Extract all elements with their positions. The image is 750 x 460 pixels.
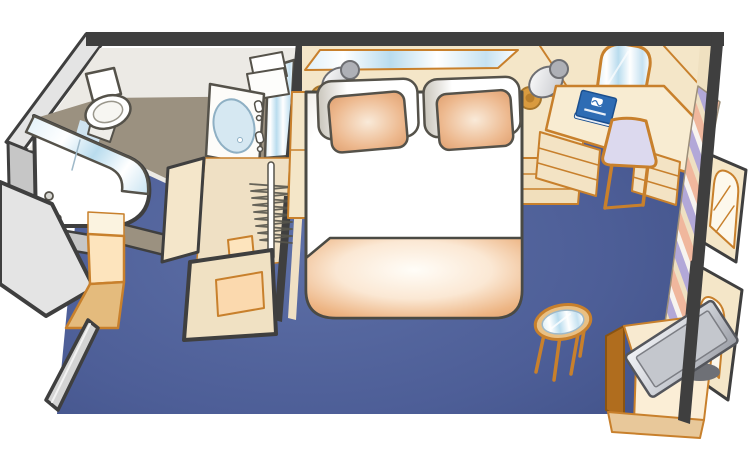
floorplan-canvas (0, 0, 750, 460)
top-wall (86, 32, 724, 46)
stateroom-floorplan (0, 0, 750, 460)
closet-front-wall-inner (216, 272, 264, 316)
entry-cabinet-gap (88, 212, 124, 236)
cushion-left (328, 91, 409, 153)
bed (306, 76, 522, 318)
lamp-cap (550, 60, 568, 78)
tv-cabinet-left (606, 326, 624, 420)
bed-foot-blanket (306, 238, 522, 318)
headboard-mirror-strip (305, 50, 518, 70)
cushion-right (436, 89, 514, 150)
closet-door-open (162, 158, 204, 262)
sink-drain (238, 138, 243, 143)
entry-cabinet-top (88, 234, 124, 284)
closet-rod (268, 162, 274, 260)
lamp-cap (341, 61, 359, 79)
chair-seat (603, 118, 656, 167)
